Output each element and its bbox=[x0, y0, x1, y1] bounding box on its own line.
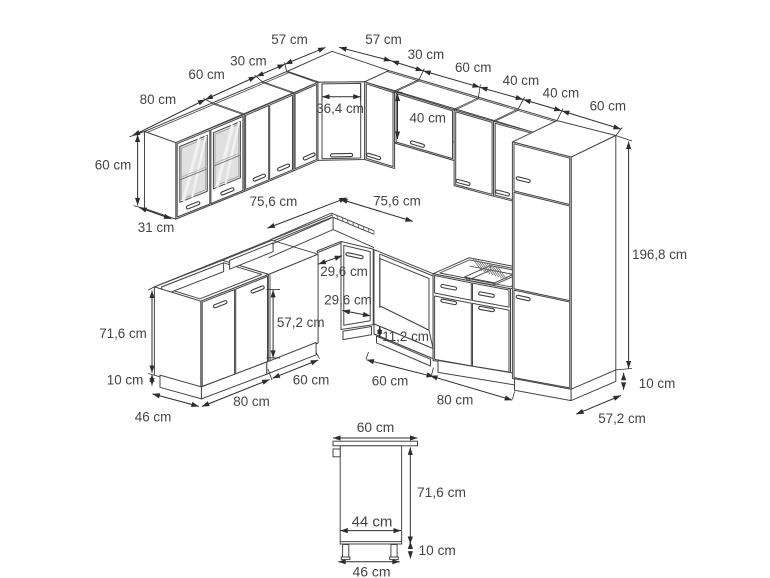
svg-text:29,6 cm: 29,6 cm bbox=[324, 293, 372, 308]
svg-text:46 cm: 46 cm bbox=[135, 410, 171, 425]
svg-text:80 cm: 80 cm bbox=[140, 92, 176, 107]
svg-text:57,2 cm: 57,2 cm bbox=[277, 315, 325, 330]
svg-text:10 cm: 10 cm bbox=[419, 543, 456, 558]
svg-text:60 cm: 60 cm bbox=[293, 373, 329, 388]
svg-text:57 cm: 57 cm bbox=[365, 32, 401, 47]
svg-text:75,6 cm: 75,6 cm bbox=[250, 194, 298, 209]
svg-text:11,2 cm: 11,2 cm bbox=[382, 329, 429, 344]
svg-text:71,6 cm: 71,6 cm bbox=[417, 485, 466, 500]
svg-text:75,6 cm: 75,6 cm bbox=[373, 193, 421, 208]
svg-text:57 cm: 57 cm bbox=[271, 32, 307, 47]
svg-text:30 cm: 30 cm bbox=[408, 47, 444, 62]
svg-text:80 cm: 80 cm bbox=[437, 393, 473, 408]
svg-text:60 cm: 60 cm bbox=[455, 60, 491, 75]
svg-text:60 cm: 60 cm bbox=[95, 158, 131, 173]
svg-text:46 cm: 46 cm bbox=[352, 563, 390, 578]
svg-text:60 cm: 60 cm bbox=[188, 67, 224, 82]
svg-text:57,2 cm: 57,2 cm bbox=[598, 411, 646, 426]
svg-text:60 cm: 60 cm bbox=[357, 420, 395, 435]
svg-text:196,8 cm: 196,8 cm bbox=[632, 247, 687, 262]
svg-text:80 cm: 80 cm bbox=[233, 394, 269, 409]
svg-text:40 cm: 40 cm bbox=[409, 110, 445, 125]
svg-text:10 cm: 10 cm bbox=[107, 373, 143, 388]
svg-text:31 cm: 31 cm bbox=[138, 220, 174, 235]
svg-text:36,4 cm: 36,4 cm bbox=[316, 101, 364, 116]
svg-text:44 cm: 44 cm bbox=[352, 514, 393, 531]
svg-text:60 cm: 60 cm bbox=[590, 98, 626, 113]
svg-text:40 cm: 40 cm bbox=[543, 86, 579, 101]
svg-text:71,6 cm: 71,6 cm bbox=[99, 326, 147, 341]
svg-text:10 cm: 10 cm bbox=[639, 376, 675, 391]
svg-text:29,6 cm: 29,6 cm bbox=[320, 264, 368, 279]
svg-text:40 cm: 40 cm bbox=[503, 73, 539, 88]
svg-text:30 cm: 30 cm bbox=[230, 53, 266, 68]
svg-text:60 cm: 60 cm bbox=[372, 374, 408, 389]
